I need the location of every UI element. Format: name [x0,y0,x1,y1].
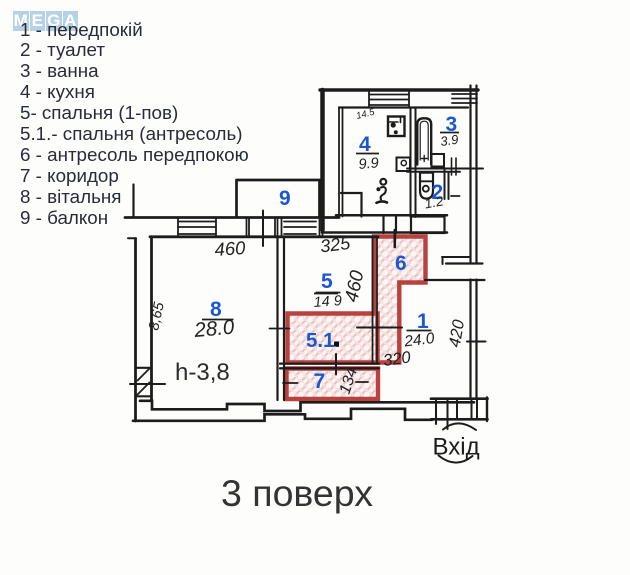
svg-text:7: 7 [314,370,326,393]
svg-text:325: 325 [319,233,352,257]
svg-text:14.5: 14.5 [355,107,376,122]
svg-text:28.0: 28.0 [192,316,235,343]
svg-text:8,65: 8,65 [146,300,168,332]
svg-text:9: 9 [279,187,291,210]
svg-text:3.9: 3.9 [439,132,459,149]
svg-text:24.0: 24.0 [402,330,435,351]
svg-text:460: 460 [214,237,247,260]
svg-text:h-3,8: h-3,8 [175,359,230,386]
svg-text:4: 4 [359,133,371,156]
svg-text:460: 460 [341,268,368,304]
svg-text:14 9: 14 9 [313,293,342,311]
svg-text:6: 6 [395,252,407,275]
svg-text:320: 320 [382,348,413,370]
svg-text:Вхід: Вхід [433,434,480,461]
svg-text:5: 5 [321,270,333,293]
svg-text:5.1.: 5.1. [306,329,340,352]
svg-text:1: 1 [417,310,429,333]
svg-text:420: 420 [446,318,469,349]
svg-text:1.2: 1.2 [423,193,445,211]
svg-text:9.9: 9.9 [358,155,379,173]
